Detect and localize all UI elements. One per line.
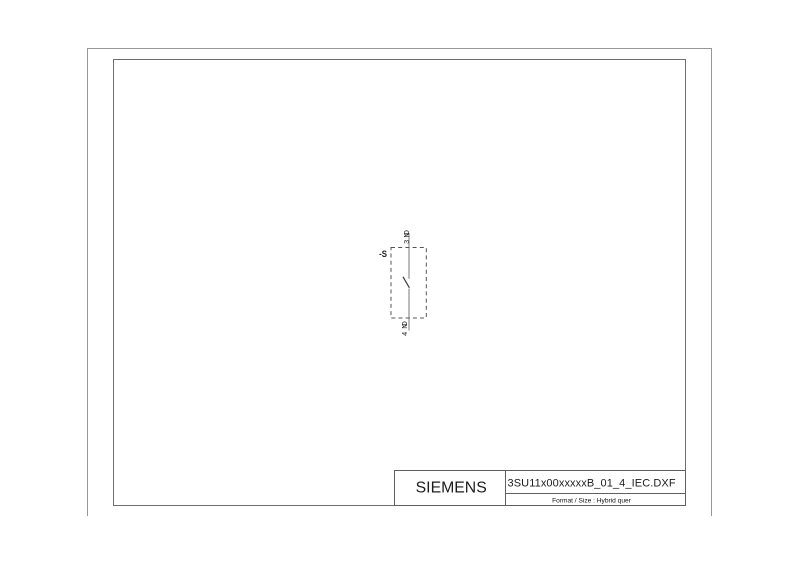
svg-text:-S: -S: [379, 248, 387, 259]
svg-text:NO: NO: [402, 230, 411, 238]
svg-text:4: 4: [400, 332, 409, 336]
svg-text:SIEMENS: SIEMENS: [416, 480, 487, 497]
svg-text:NO: NO: [400, 321, 409, 329]
svg-text:Format / Size : Hybrid quer: Format / Size : Hybrid quer: [552, 497, 632, 504]
svg-text:3SU11x00xxxxxB_01_4_IEC.DXF: 3SU11x00xxxxxB_01_4_IEC.DXF: [508, 477, 676, 489]
svg-text:3: 3: [402, 240, 411, 244]
